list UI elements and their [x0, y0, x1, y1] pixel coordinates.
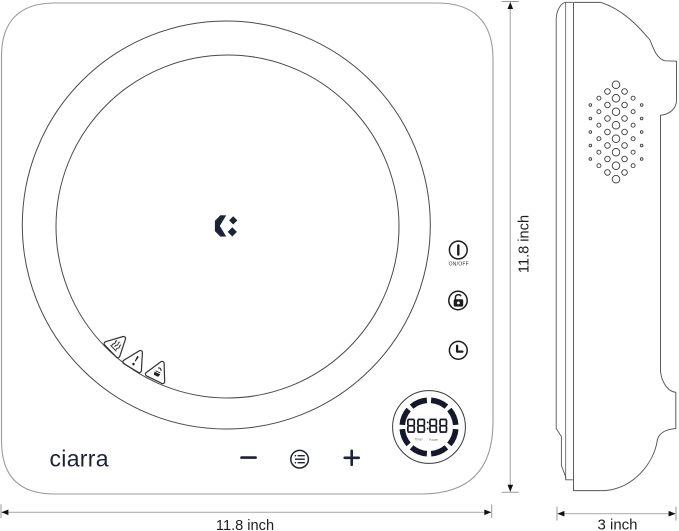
svg-text:Power: Power	[429, 438, 439, 442]
svg-text:Timer: Timer	[414, 438, 423, 442]
svg-text:3 inch: 3 inch	[597, 517, 637, 531]
svg-text:ciarra: ciarra	[50, 446, 109, 472]
svg-text:11.8 inch: 11.8 inch	[216, 518, 274, 531]
svg-text:ON/OFF: ON/OFF	[449, 261, 469, 267]
svg-text:11.8 inch: 11.8 inch	[517, 215, 533, 273]
